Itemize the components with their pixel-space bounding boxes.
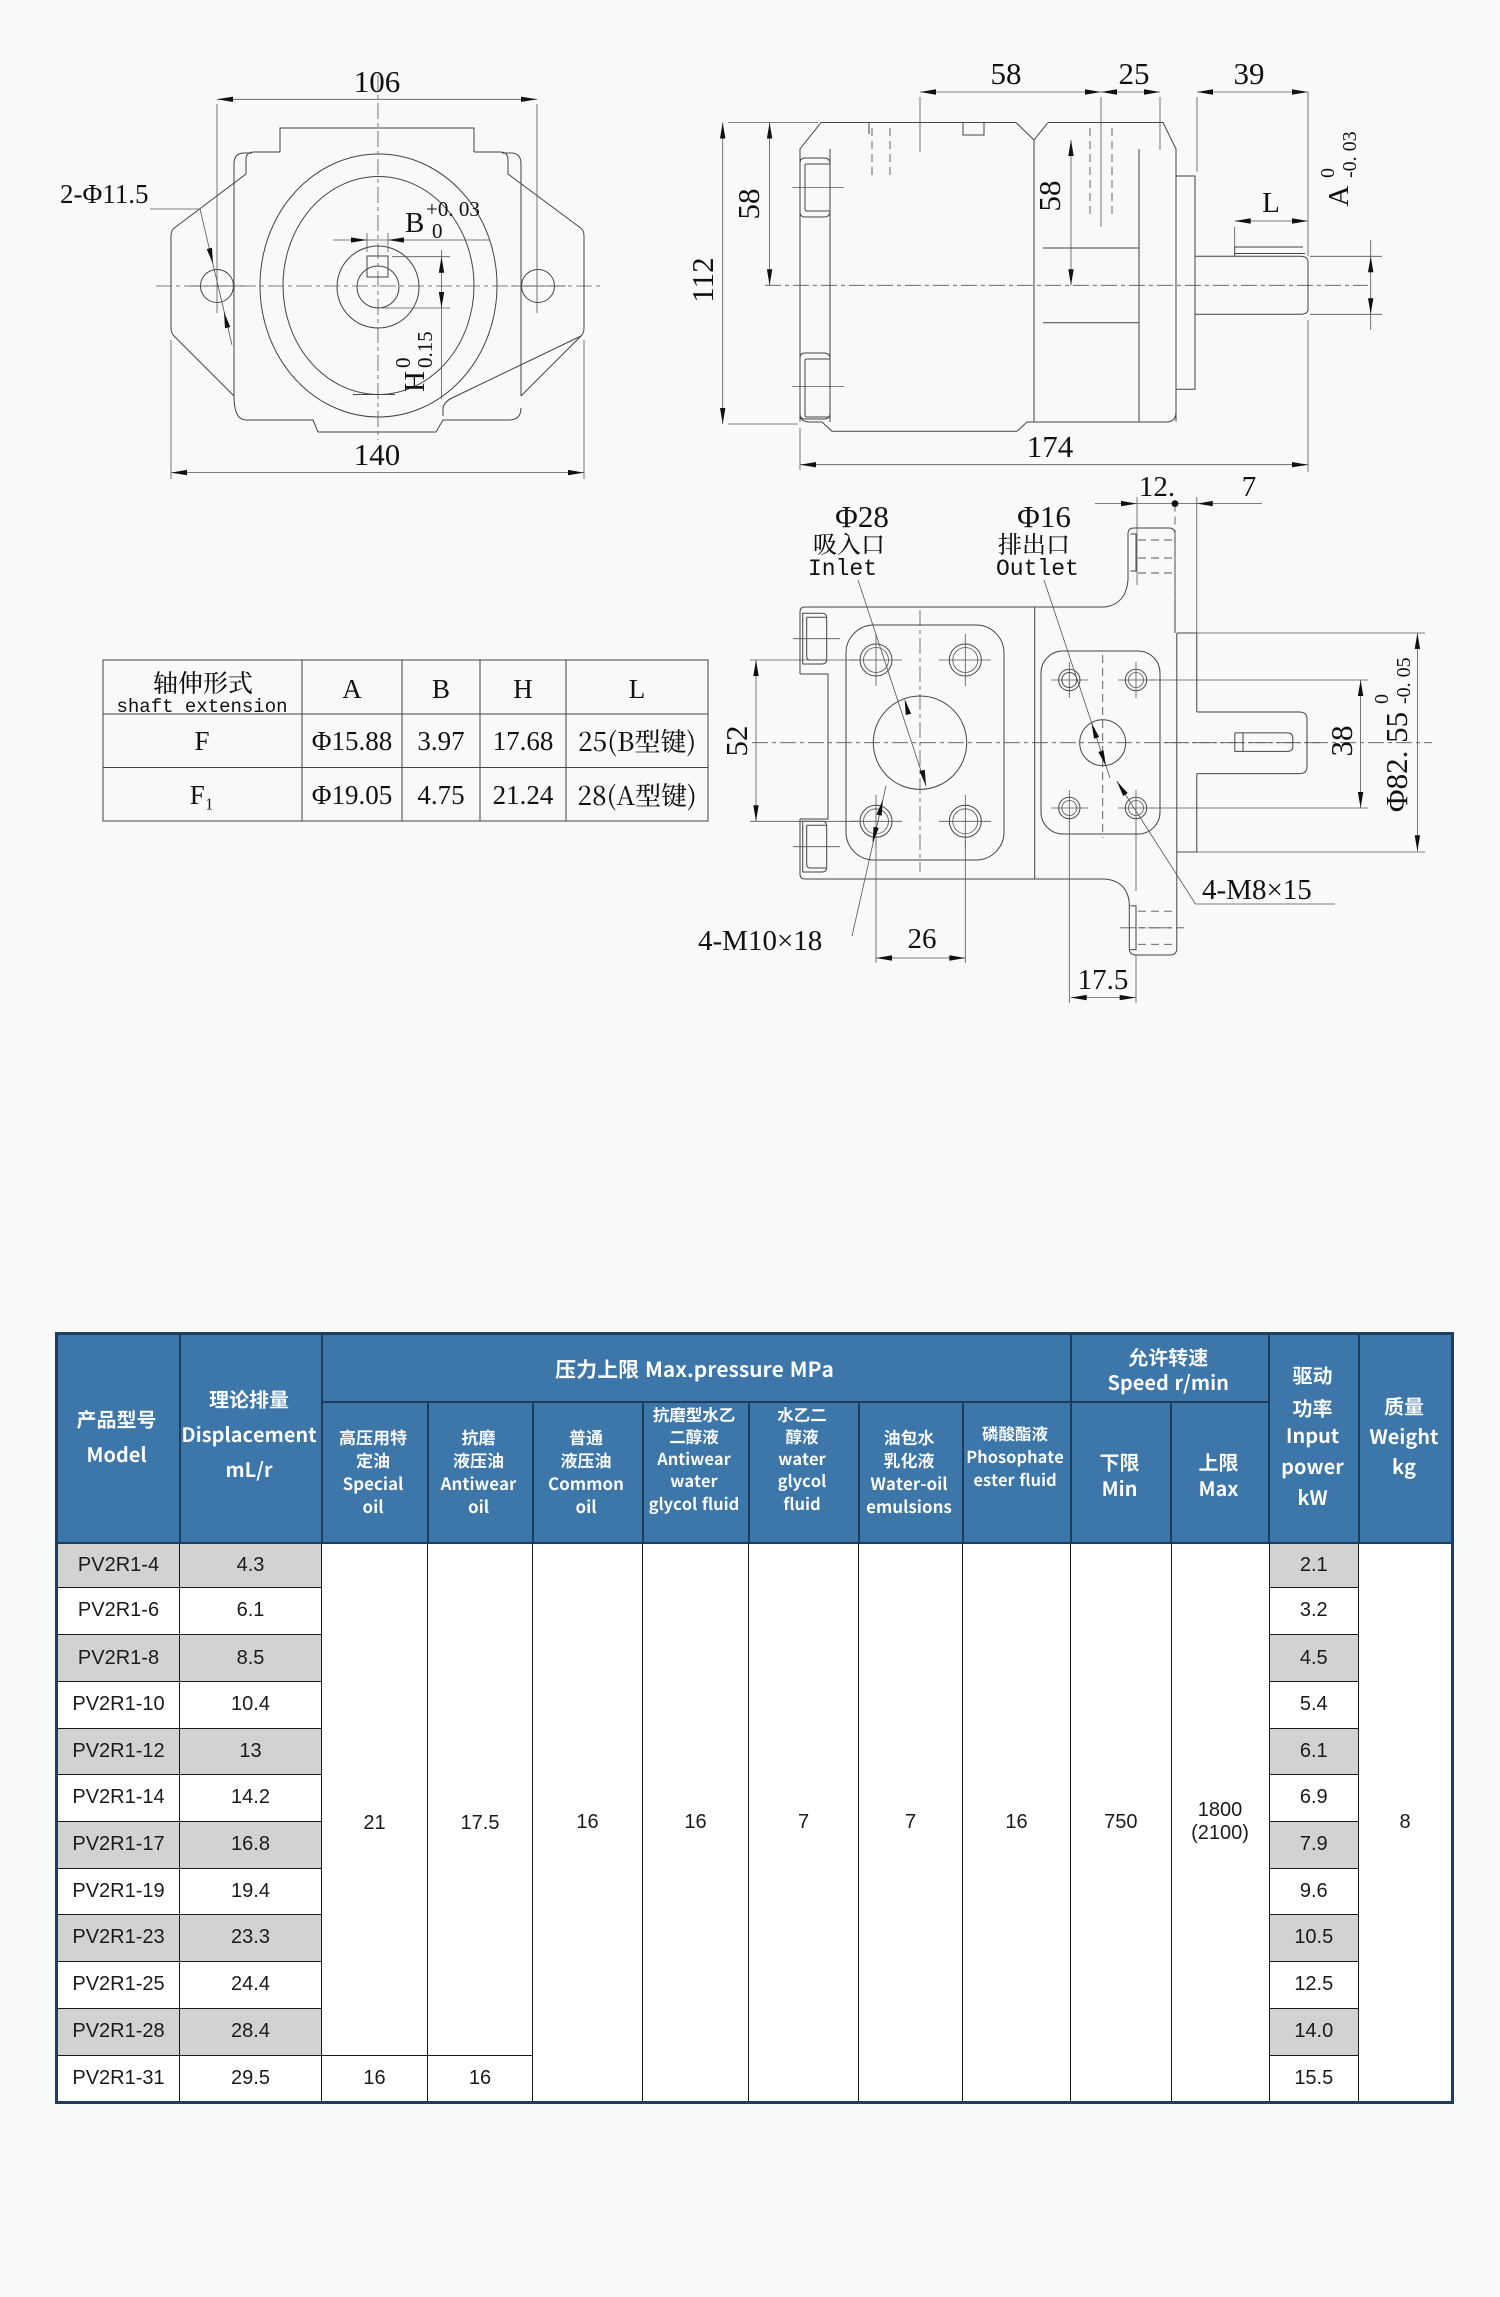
svg-text:H: H (513, 674, 533, 704)
svg-text:25: 25 (1119, 56, 1150, 91)
svg-text:106: 106 (354, 64, 401, 99)
svg-text:0.15: 0.15 (413, 331, 437, 368)
svg-text:B: B (405, 207, 424, 239)
svg-text:140: 140 (354, 437, 401, 472)
svg-text:-0. 03: -0. 03 (1339, 131, 1361, 178)
svg-text:58: 58 (731, 189, 766, 220)
svg-text:Inlet: Inlet (808, 556, 877, 582)
svg-text:4-M8×15: 4-M8×15 (1202, 874, 1312, 906)
svg-text:Φ15.88: Φ15.88 (312, 726, 393, 756)
svg-text:Outlet: Outlet (996, 556, 1079, 582)
svg-text:7: 7 (1242, 471, 1257, 503)
svg-text:58: 58 (1032, 181, 1067, 212)
svg-text:shaft extension: shaft extension (116, 696, 287, 718)
svg-text:B: B (432, 674, 450, 704)
svg-text:Φ82. 55: Φ82. 55 (1379, 712, 1414, 812)
svg-text:A: A (1323, 185, 1355, 206)
svg-text:Φ19.05: Φ19.05 (312, 780, 393, 810)
svg-text:Φ16: Φ16 (1017, 499, 1071, 534)
svg-text:39: 39 (1234, 56, 1265, 91)
svg-text:58: 58 (991, 56, 1022, 91)
svg-text:H: H (399, 371, 431, 392)
svg-text:17.68: 17.68 (493, 726, 554, 756)
svg-text:A: A (342, 674, 362, 704)
svg-text:4.75: 4.75 (417, 780, 464, 810)
svg-text:12.: 12. (1139, 471, 1175, 503)
svg-text:0: 0 (1317, 168, 1339, 178)
svg-text:52: 52 (719, 726, 754, 757)
svg-text:2-Φ11.5: 2-Φ11.5 (60, 179, 148, 209)
svg-text:L: L (629, 674, 646, 704)
svg-text:L: L (1262, 187, 1280, 219)
svg-text:38: 38 (1324, 726, 1359, 757)
svg-text:0: 0 (432, 219, 443, 243)
svg-text:F₁: F₁ (190, 780, 214, 810)
svg-text:F: F (194, 726, 209, 756)
svg-text:-0. 05: -0. 05 (1393, 657, 1415, 704)
svg-text:0: 0 (1371, 694, 1393, 704)
svg-text:17.5: 17.5 (1078, 964, 1129, 996)
svg-text:+0. 03: +0. 03 (426, 197, 480, 221)
svg-text:112: 112 (685, 257, 720, 302)
svg-text:Φ28: Φ28 (835, 499, 889, 534)
svg-text:21.24: 21.24 (493, 780, 554, 810)
svg-text:26: 26 (908, 923, 937, 955)
svg-text:174: 174 (1027, 429, 1074, 464)
svg-text:0: 0 (391, 358, 415, 369)
svg-text:4-M10×18: 4-M10×18 (698, 925, 822, 957)
svg-text:3.97: 3.97 (417, 726, 464, 756)
